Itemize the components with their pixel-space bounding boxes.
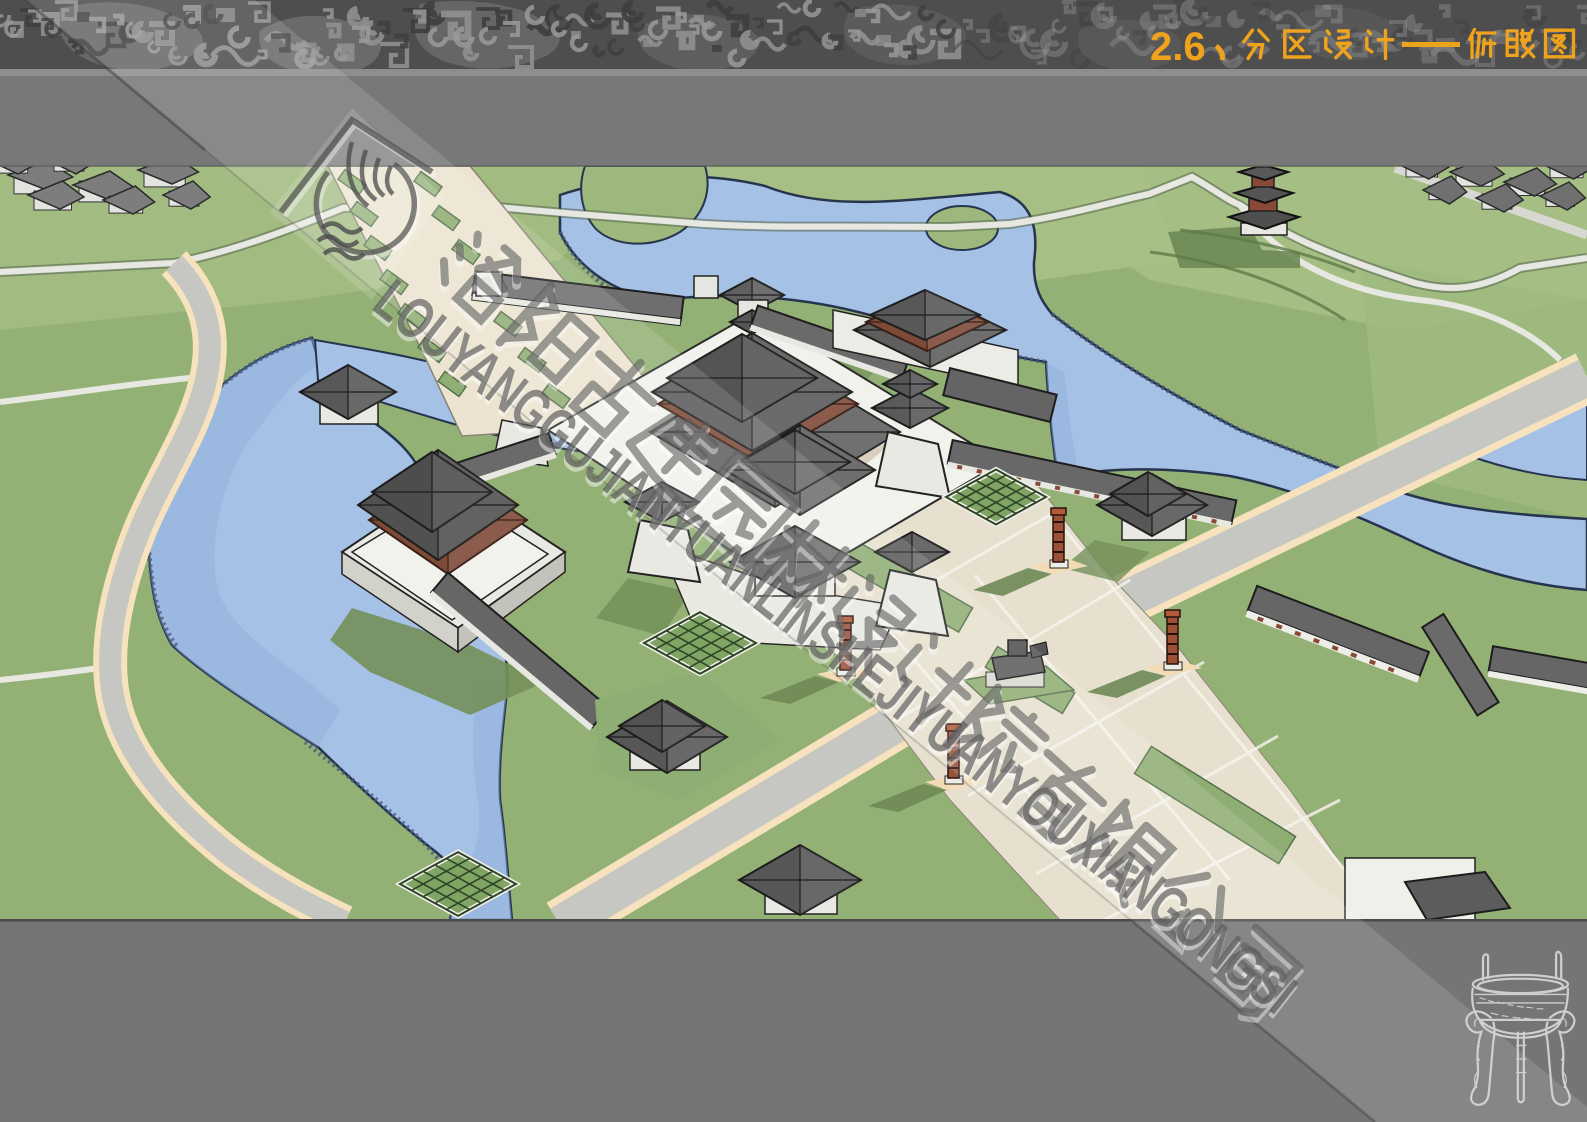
svg-text:2.6: 2.6 <box>1150 25 1206 69</box>
